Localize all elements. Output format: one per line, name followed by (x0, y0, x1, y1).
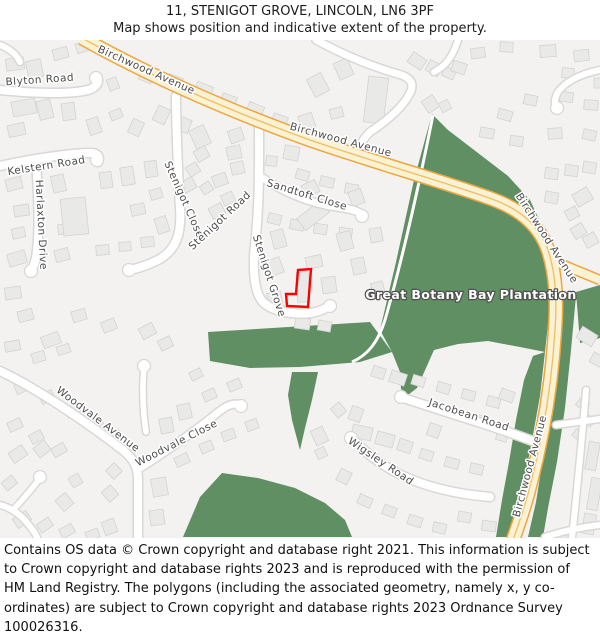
building (99, 171, 113, 189)
area-label-great-botany-bay-plantation: Great Botany Bay Plantation (365, 287, 576, 302)
building (230, 161, 245, 175)
building (144, 160, 158, 178)
building (60, 197, 89, 236)
page-title: 11, STENIGOT GROVE, LINCOLN, LN6 3PF (0, 3, 600, 20)
building (469, 463, 484, 475)
map-header: 11, STENIGOT GROVE, LINCOLN, LN6 3PF Map… (0, 0, 600, 40)
building (266, 156, 278, 167)
building (96, 245, 110, 256)
building (582, 129, 597, 141)
building (159, 417, 174, 434)
building (151, 477, 169, 497)
building (141, 236, 155, 247)
building (479, 127, 495, 139)
building (548, 128, 563, 140)
building (523, 94, 538, 106)
building (509, 135, 523, 147)
road-minor (143, 368, 146, 432)
building (369, 227, 383, 243)
building (317, 320, 332, 332)
building (432, 522, 447, 534)
building (13, 204, 29, 217)
copyright-text: Contains OS data © Crown copyright and d… (4, 541, 595, 637)
building (350, 257, 366, 275)
building (4, 340, 21, 352)
building (544, 191, 559, 204)
copyright-footer: Contains OS data © Crown copyright and d… (0, 538, 600, 637)
building (564, 164, 578, 177)
building (457, 511, 472, 523)
building (226, 145, 242, 161)
building (584, 100, 599, 111)
building (61, 102, 76, 121)
building (582, 161, 597, 174)
building (500, 42, 514, 53)
building (544, 167, 558, 180)
building (540, 44, 557, 57)
building (130, 203, 146, 217)
page-subtitle: Map shows position and indicative extent… (0, 20, 600, 37)
building (119, 242, 132, 252)
building (573, 49, 589, 62)
property-map-page: 11, STENIGOT GROVE, LINCOLN, LN6 3PF Map… (0, 0, 600, 625)
building (594, 78, 600, 88)
building (11, 227, 26, 239)
building (149, 509, 165, 526)
building (481, 520, 496, 532)
building (120, 166, 136, 186)
building (321, 276, 337, 294)
building (177, 403, 193, 420)
building (313, 223, 327, 235)
building (4, 286, 22, 300)
building (470, 47, 485, 59)
map-viewport: Birchwood AvenueBirchwood AvenueBirchwoo… (0, 40, 600, 538)
map-canvas: Birchwood AvenueBirchwood AvenueBirchwoo… (0, 40, 600, 538)
building (283, 145, 300, 161)
